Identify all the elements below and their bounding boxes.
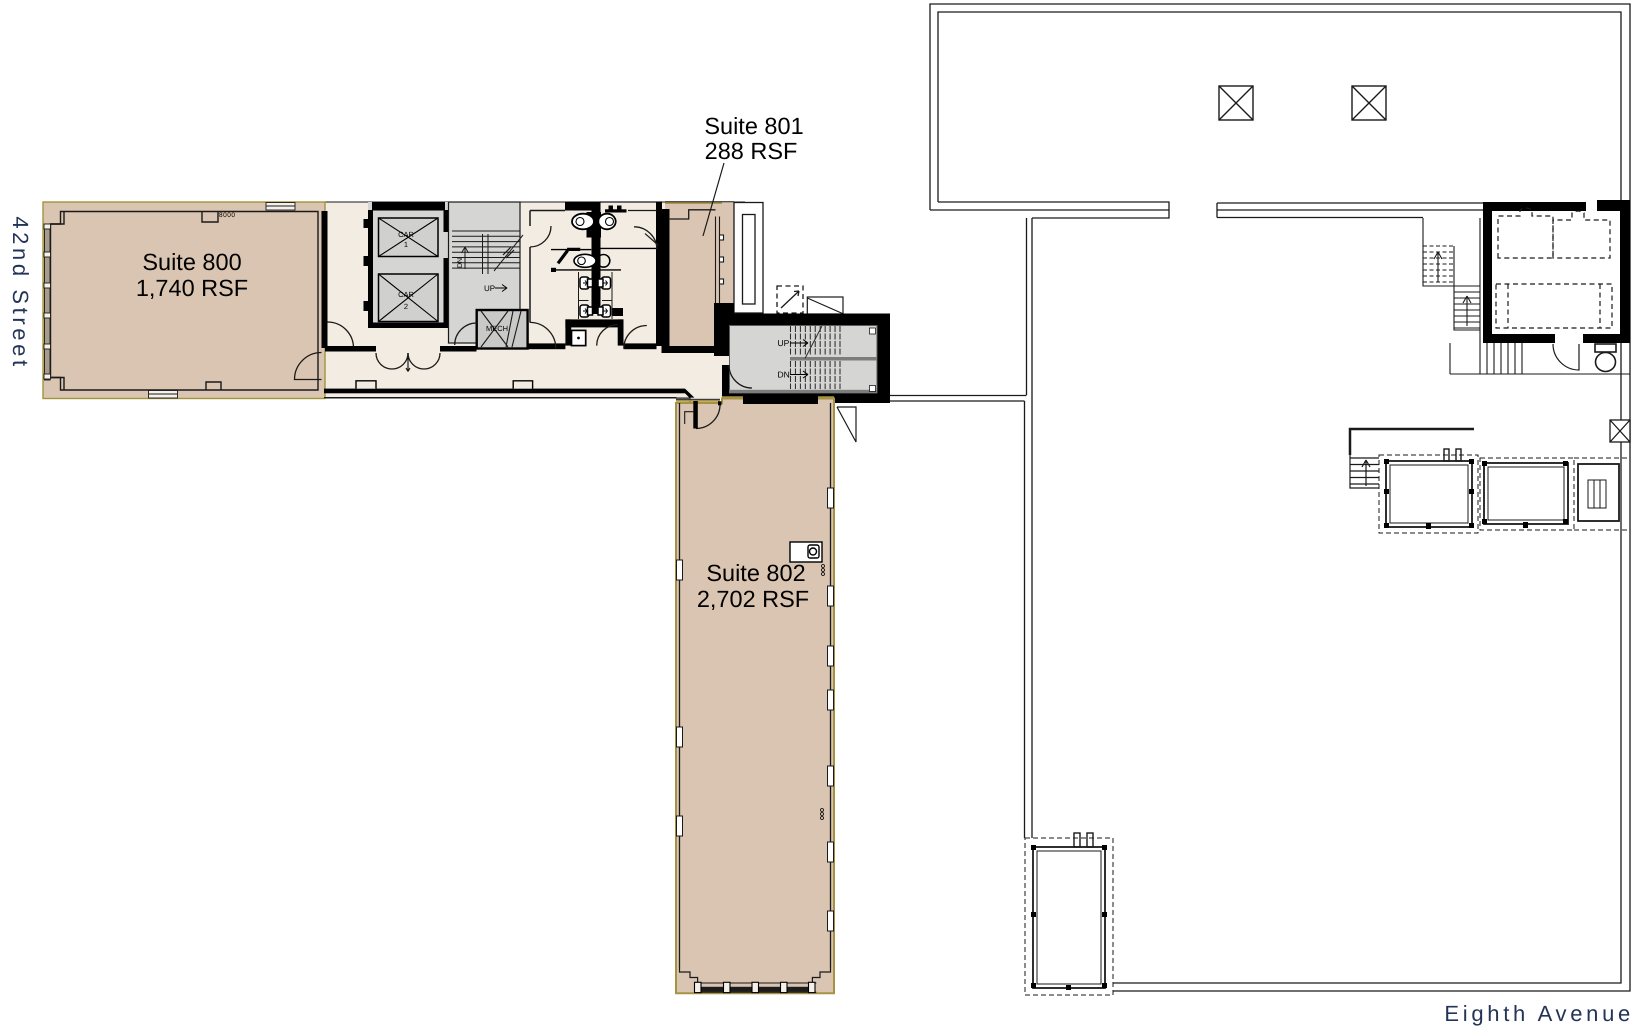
svg-text:MECH: MECH <box>486 324 508 333</box>
svg-text:UP: UP <box>484 284 495 293</box>
svg-text:288 RSF: 288 RSF <box>705 138 798 164</box>
svg-text:Suite 802: Suite 802 <box>706 560 805 586</box>
svg-text:42nd Street: 42nd Street <box>8 216 33 369</box>
svg-text:8000: 8000 <box>219 212 235 219</box>
svg-text:UP: UP <box>778 338 790 348</box>
svg-text:2: 2 <box>404 302 408 311</box>
svg-text:DN: DN <box>457 258 464 268</box>
svg-text:1: 1 <box>404 240 408 249</box>
svg-text:CAR: CAR <box>398 230 414 239</box>
svg-text:Suite 801: Suite 801 <box>704 113 803 139</box>
svg-text:1,740 RSF: 1,740 RSF <box>136 275 248 301</box>
svg-text:Suite 800: Suite 800 <box>142 249 241 275</box>
svg-text:Eighth Avenue: Eighth Avenue <box>1444 1001 1634 1026</box>
svg-text:CAR: CAR <box>398 290 414 299</box>
svg-text:2,702 RSF: 2,702 RSF <box>697 586 809 612</box>
svg-text:DN: DN <box>778 370 790 380</box>
